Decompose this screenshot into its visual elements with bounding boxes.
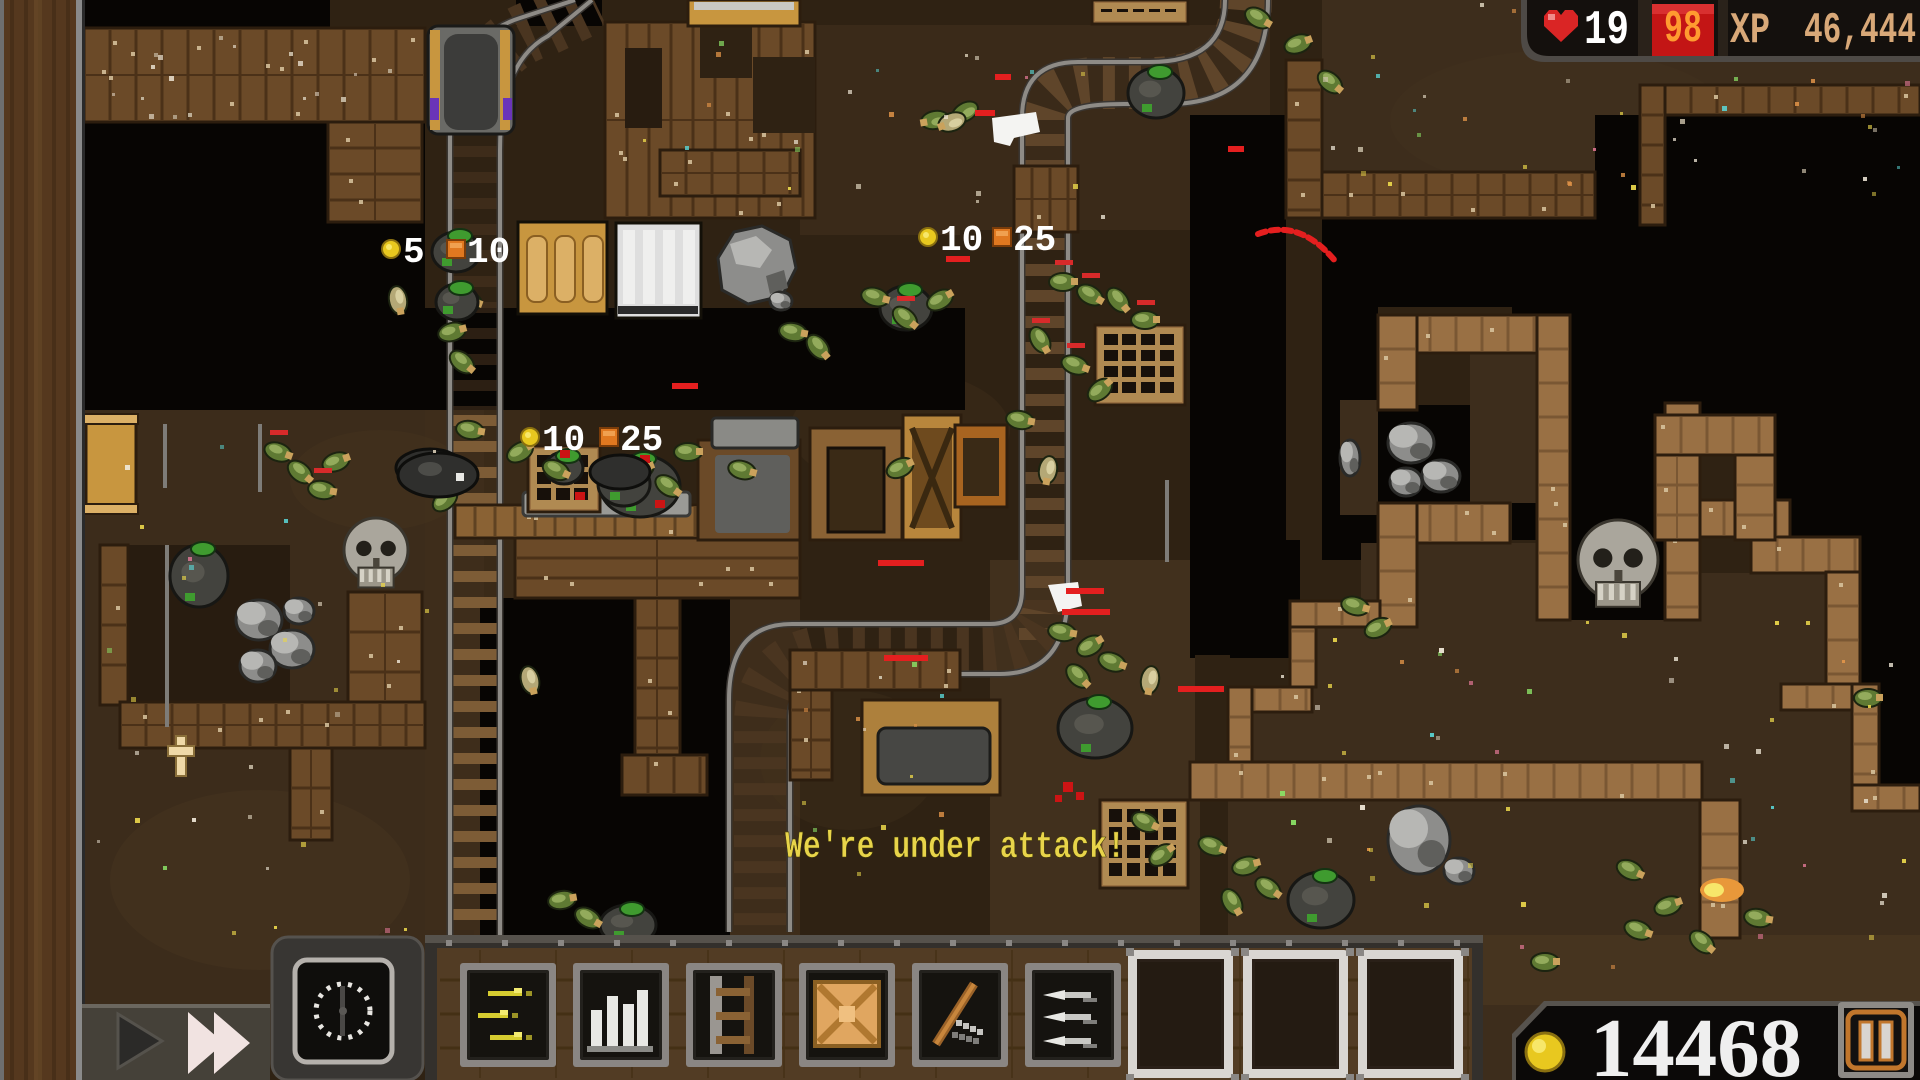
svg-text:98: 98 (1664, 4, 1702, 55)
svg-text:10: 10 (467, 232, 510, 273)
svg-text:19: 19 (1584, 4, 1629, 58)
svg-text:10: 10 (940, 220, 983, 261)
svg-text:We're under attack!: We're under attack! (785, 826, 1125, 869)
svg-text:25: 25 (1013, 220, 1056, 261)
svg-text:XP: XP (1730, 6, 1770, 56)
svg-text:14468: 14468 (1590, 1002, 1802, 1080)
svg-text:25: 25 (620, 420, 663, 461)
svg-text:5: 5 (403, 232, 425, 273)
svg-text:10: 10 (542, 420, 585, 461)
svg-text:46,444: 46,444 (1804, 6, 1916, 56)
